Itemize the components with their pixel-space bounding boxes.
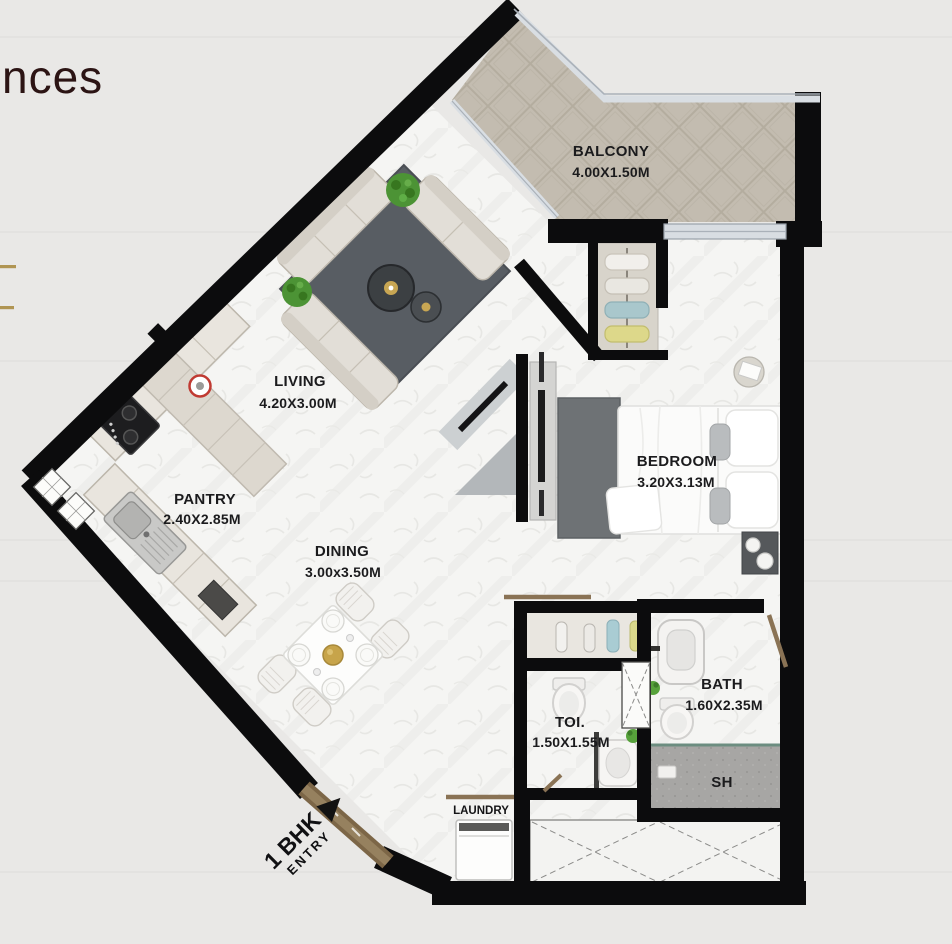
stove-burner-icon (190, 376, 211, 397)
laundry-label: LAUNDRY (453, 805, 509, 817)
bath-label: BATH (701, 676, 743, 693)
plant-icon (386, 173, 420, 207)
floor-plan-page: BALCONY 4.00X1.50M LIVING 4.20X3.00M PAN… (0, 0, 952, 944)
nightstand-icon (742, 532, 778, 574)
balcony-dims: 4.00X1.50M (572, 164, 650, 180)
pantry-label: PANTRY (174, 491, 236, 508)
wardrobe-icon (596, 243, 658, 353)
pillow (726, 410, 778, 466)
brand-accent-ticks (0, 265, 16, 309)
toilet-dims: 1.50X1.55M (532, 734, 610, 750)
pillow (710, 488, 730, 524)
pantry-dims: 2.40X2.85M (163, 511, 241, 527)
centerpiece-bowl-icon (323, 645, 343, 665)
living-dims: 4.20X3.00M (259, 395, 337, 411)
living-label: LIVING (274, 373, 326, 390)
bed-icon (606, 406, 784, 535)
floor-plan-svg: BALCONY 4.00X1.50M LIVING 4.20X3.00M PAN… (0, 0, 952, 944)
bedroom-dims: 3.20X3.13M (637, 474, 715, 490)
bath-dims: 1.60X2.35M (685, 697, 763, 713)
basin-icon (650, 620, 704, 684)
pillow (726, 472, 778, 528)
balcony-label: BALCONY (573, 143, 649, 160)
brand-text-fragment: nces (2, 51, 103, 103)
toilet-label: TOI. (555, 714, 585, 731)
dining-label: DINING (315, 543, 369, 560)
bedroom-label: BEDROOM (637, 453, 717, 470)
washing-machine-icon (456, 820, 512, 880)
throw-blanket (606, 483, 663, 534)
dining-dims: 3.00x3.50M (305, 564, 381, 580)
tv-icon (538, 390, 545, 482)
shower-label: SH (711, 774, 732, 791)
service-ledge (530, 820, 788, 884)
side-table-icon (734, 357, 764, 387)
plant-icon (282, 277, 312, 307)
dresser-unit (526, 612, 646, 660)
shower-shelf-icon (658, 766, 676, 778)
